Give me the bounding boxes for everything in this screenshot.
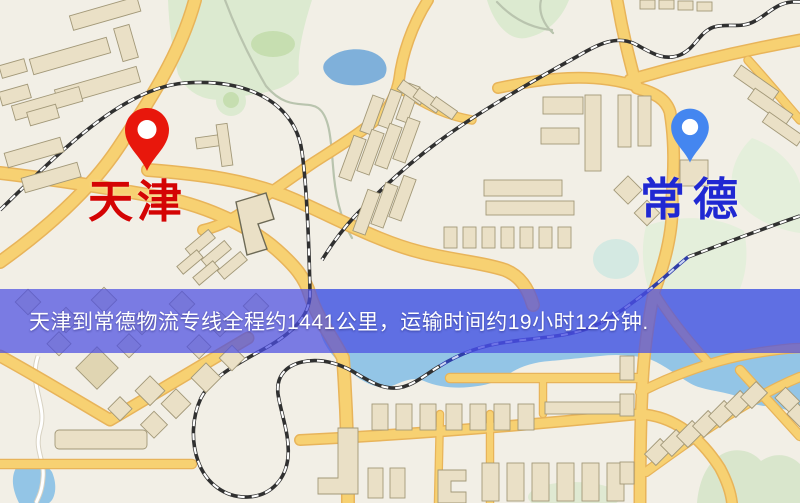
route-summary-text: 天津到常德物流专线全程约1441公里，运输时间约19小时12分钟. <box>0 306 649 336</box>
origin-pin[interactable] <box>119 105 175 175</box>
info-banner: 天津到常德物流专线全程约1441公里，运输时间约19小时12分钟. <box>0 289 800 353</box>
destination-city-label: 常德 <box>640 178 746 223</box>
map-screenshot: 天津 常德 天津到常德物流专线全程约1441公里，运输时间约19小时12分钟. <box>0 0 800 503</box>
map-canvas[interactable] <box>0 0 800 503</box>
origin-pin-icon <box>119 105 175 175</box>
destination-pin-icon <box>666 106 714 166</box>
destination-pin[interactable] <box>666 106 714 166</box>
origin-city-label: 天津 <box>88 180 186 225</box>
